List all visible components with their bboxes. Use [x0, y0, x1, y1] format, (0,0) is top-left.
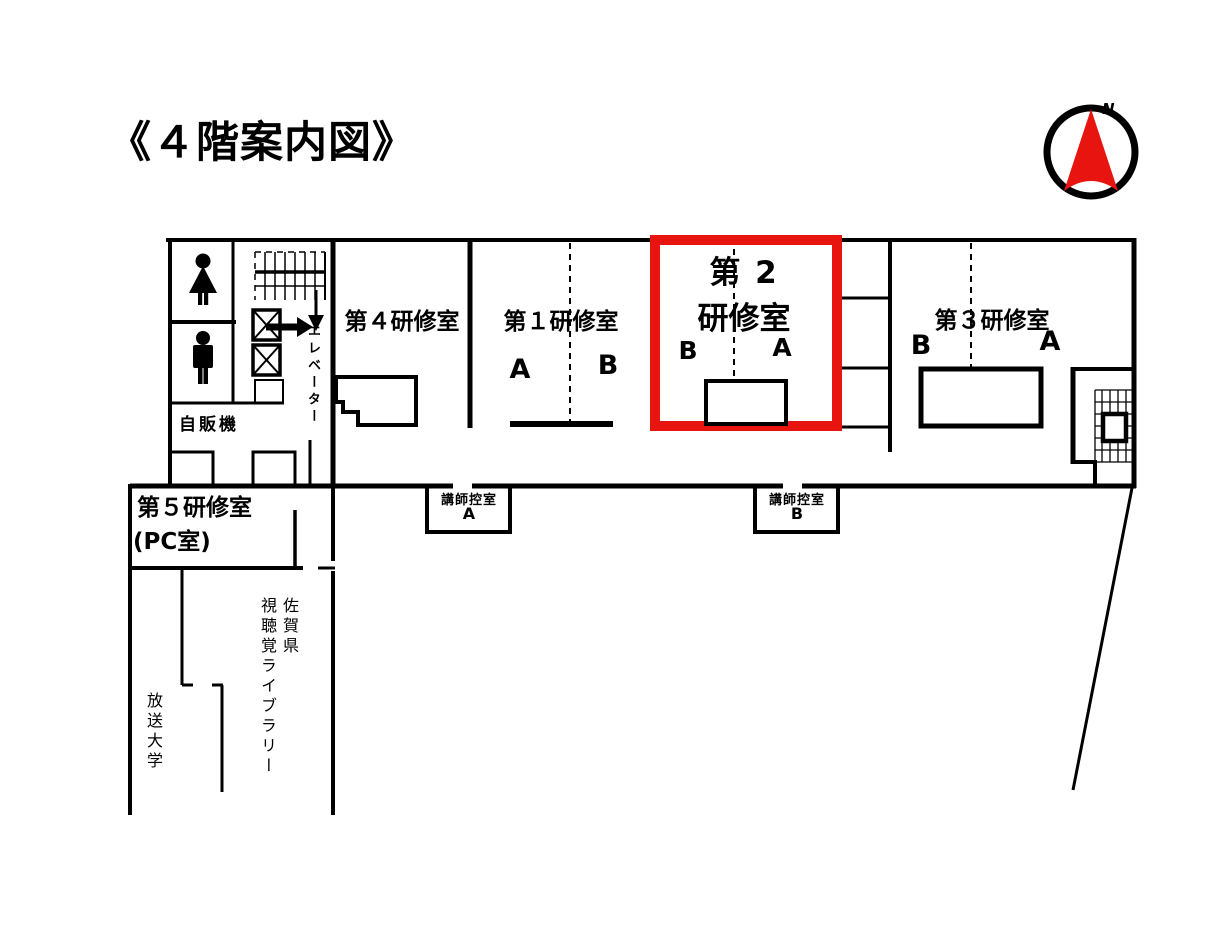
instructor-room-b-letter: B: [756, 504, 838, 523]
male-restroom-icon: [193, 331, 213, 384]
room2-podium: [706, 381, 786, 424]
elevator-label: エレベーター: [303, 324, 322, 426]
room2-zone-b-label: B: [674, 336, 702, 365]
floor-guide-map: 《４階案内図》 第４研修室 第１研修室 A B 第 2 研修室 B A 第３研修…: [0, 0, 1229, 945]
room3-zone-b-label: B: [906, 330, 936, 361]
compass-north-label: N: [1102, 100, 1115, 118]
return-stairs-icon: [1071, 367, 1134, 486]
library-label: 佐賀県視聴覚ライブラリー: [252, 597, 300, 777]
pillar-box-1: [170, 452, 213, 486]
room5-label-line2: (PC室): [133, 522, 211, 556]
library-partition-wall: [182, 568, 223, 792]
room1-zone-a-label: A: [506, 354, 534, 385]
library-label-col2: 視聴覚ライブラリー: [258, 597, 277, 777]
library-label-col1: 佐賀県: [280, 597, 299, 657]
room1-zone-b-label: B: [594, 350, 622, 381]
pillar-box-2: [253, 452, 295, 486]
open-university-label: 放送大学: [141, 692, 165, 772]
vending-machine-label: 自販機: [179, 410, 239, 435]
instructor-room-a-letter: A: [428, 504, 510, 523]
room2-label-line1: 第 2: [655, 247, 833, 292]
north-compass-icon: [1047, 108, 1135, 196]
room5-label-line1: 第５研修室: [137, 488, 252, 522]
room3-zone-a-label: A: [1035, 326, 1065, 357]
room4-label: 第４研修室: [334, 302, 470, 336]
room2-zone-a-label: A: [768, 333, 796, 362]
page-title: 《４階案内図》: [108, 108, 416, 170]
female-restroom-icon: [189, 254, 217, 306]
room2-label-line2: 研修室: [655, 293, 833, 338]
site-boundary-diagonal: [1073, 488, 1132, 790]
cubicle-column: [842, 240, 890, 452]
room1-label: 第１研修室: [488, 302, 634, 336]
room3-podium: [921, 369, 1041, 426]
room4-stage-steps: [336, 377, 416, 425]
